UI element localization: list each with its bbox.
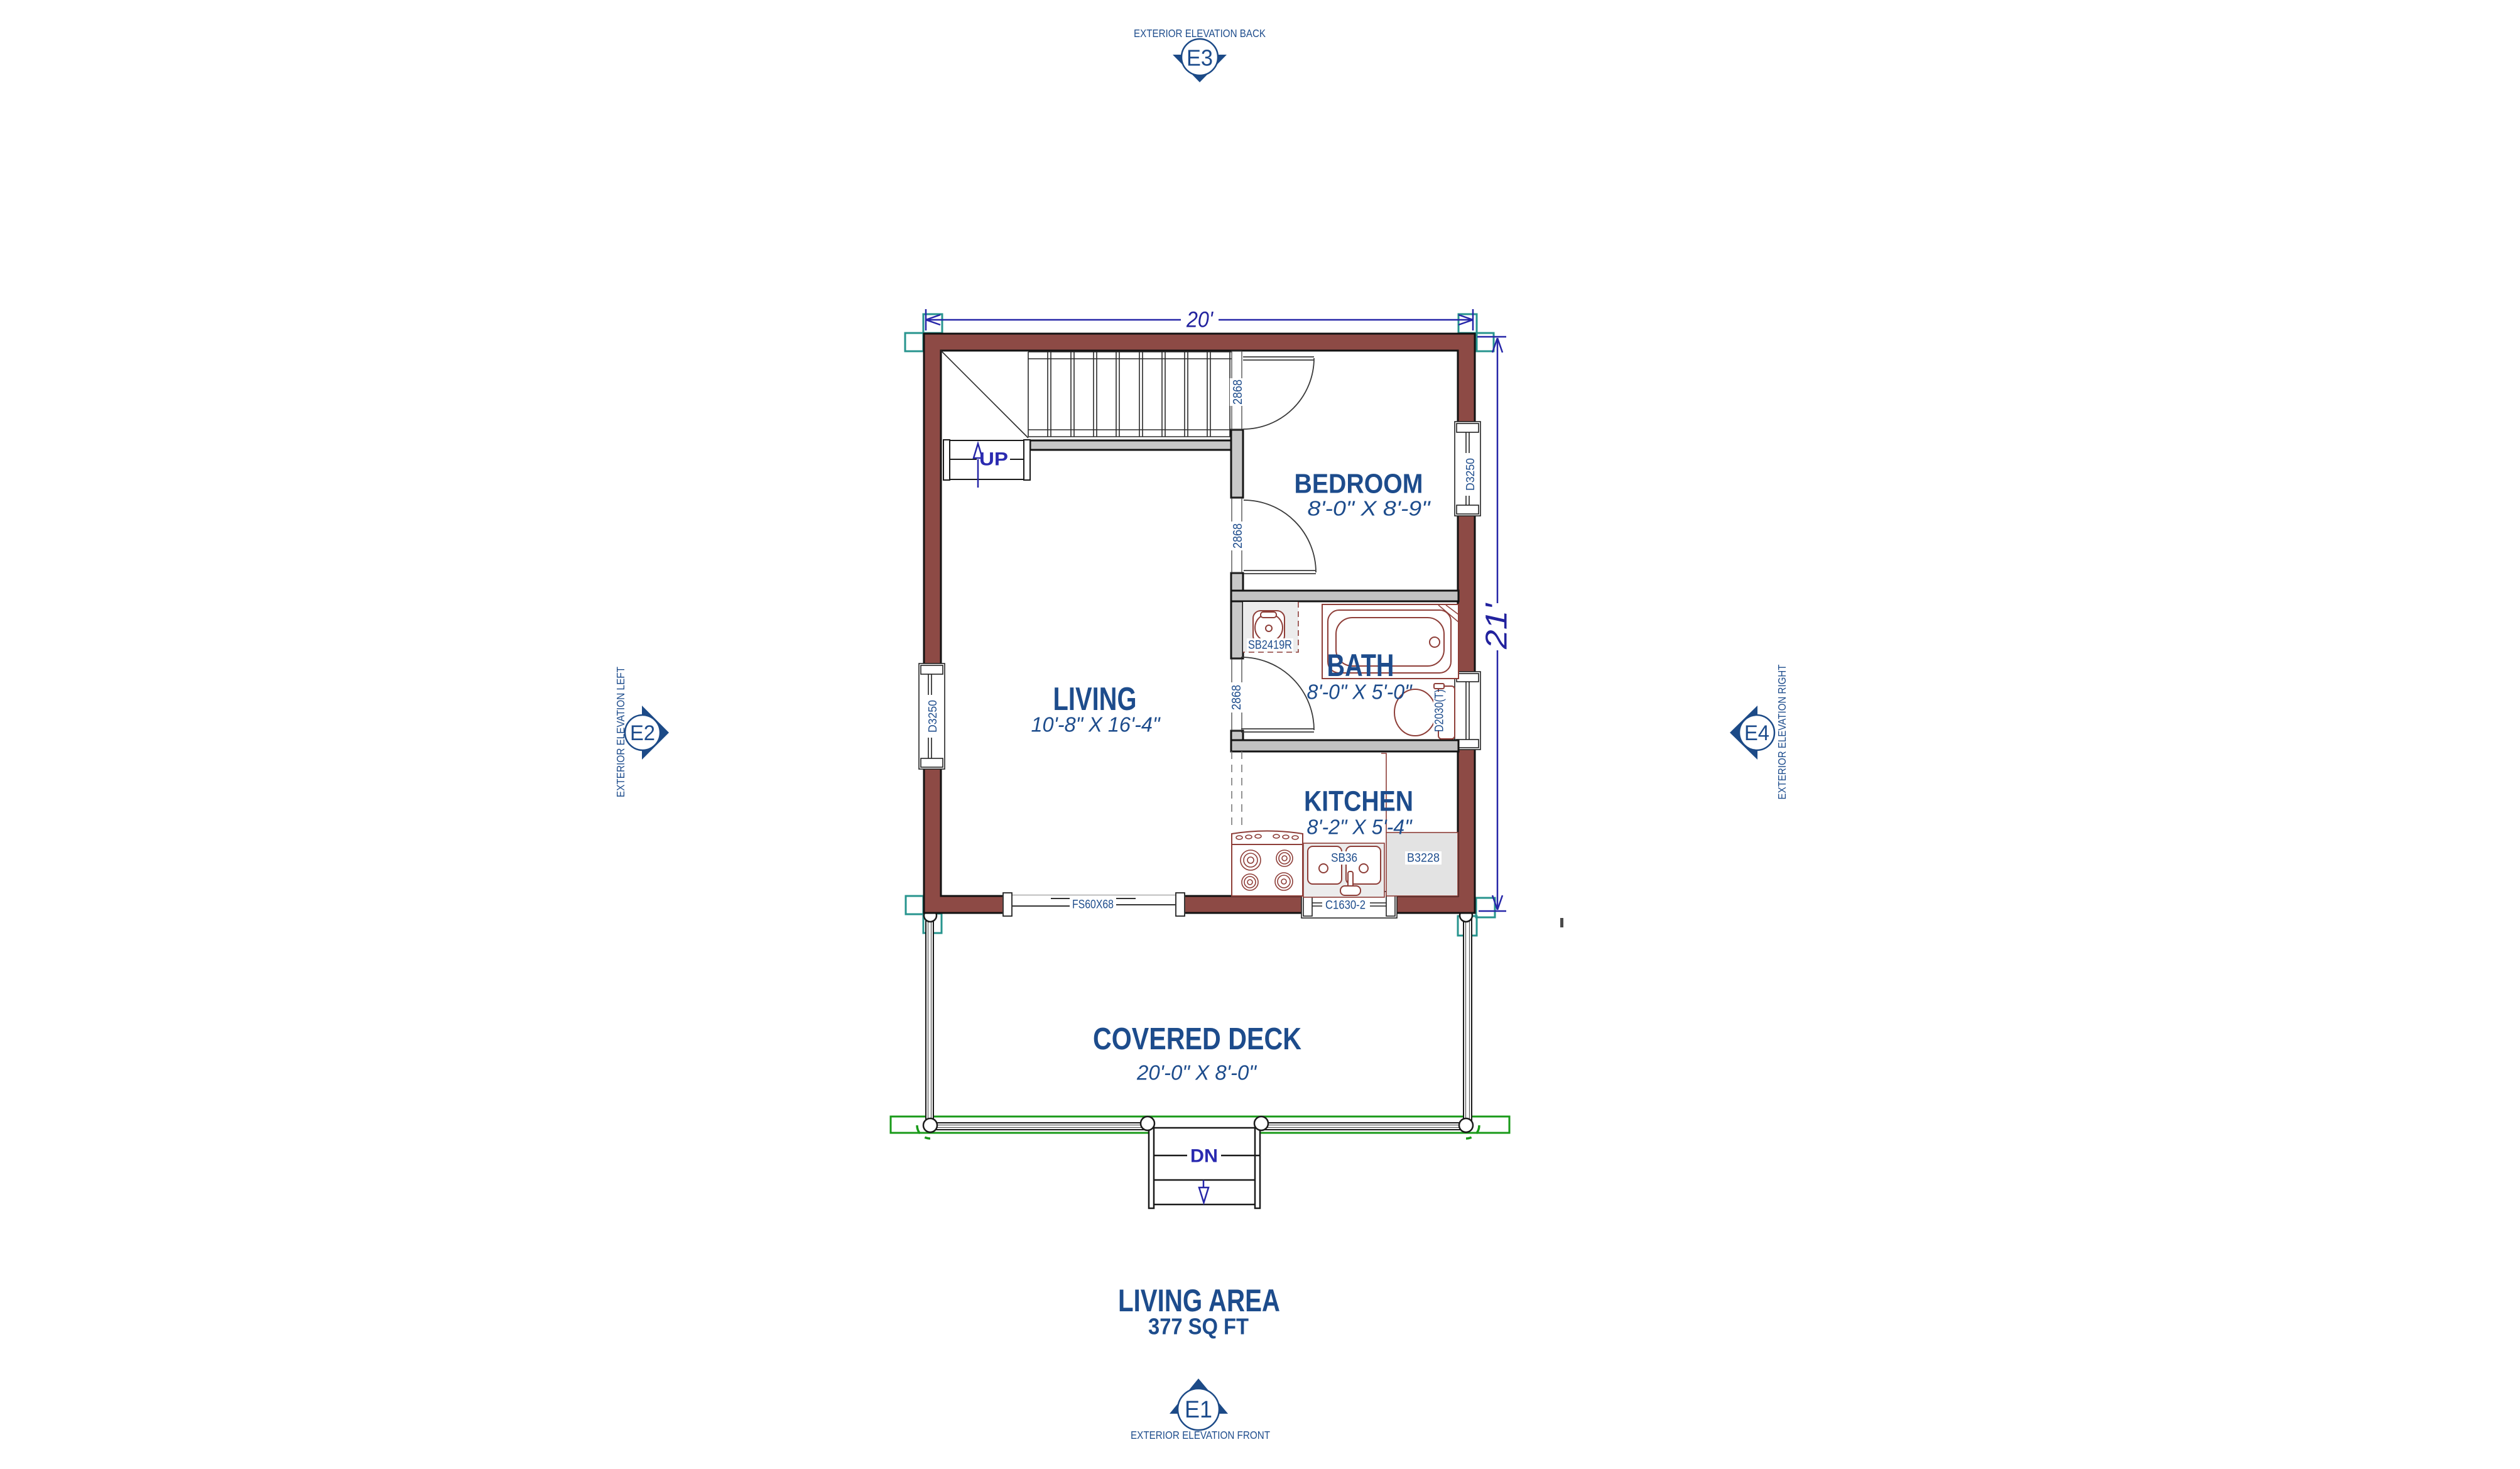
svg-text:EXTERIOR ELEVATION LEFT: EXTERIOR ELEVATION LEFT xyxy=(614,667,627,797)
svg-text:EXTERIOR ELEVATION RIGHT: EXTERIOR ELEVATION RIGHT xyxy=(1776,664,1788,799)
svg-text:LIVING: LIVING xyxy=(1053,681,1137,718)
svg-text:20': 20' xyxy=(1186,308,1214,332)
svg-text:D2030(T): D2030(T) xyxy=(1433,689,1447,732)
svg-text:SB36: SB36 xyxy=(1331,852,1357,865)
svg-text:SB2419R: SB2419R xyxy=(1248,639,1292,652)
svg-text:21': 21' xyxy=(1480,603,1514,650)
svg-text:UP: UP xyxy=(979,449,1008,470)
svg-text:BATH: BATH xyxy=(1327,648,1394,683)
svg-text:C1630-2: C1630-2 xyxy=(1325,899,1366,912)
svg-text:10'-8" X 16'-4": 10'-8" X 16'-4" xyxy=(1031,713,1161,736)
svg-text:2868: 2868 xyxy=(1231,523,1245,549)
svg-text:8'-0" X 5'-0": 8'-0" X 5'-0" xyxy=(1307,680,1413,704)
svg-text:D3250: D3250 xyxy=(926,700,939,733)
svg-text:D3250: D3250 xyxy=(1464,458,1477,491)
svg-text:BEDROOM: BEDROOM xyxy=(1295,469,1423,500)
svg-text:B3228: B3228 xyxy=(1407,852,1440,865)
svg-text:377 SQ FT: 377 SQ FT xyxy=(1148,1314,1249,1340)
svg-text:8'-0" X 8'-9": 8'-0" X 8'-9" xyxy=(1308,497,1431,520)
svg-text:E1: E1 xyxy=(1185,1397,1212,1423)
svg-text:8'-2" X 5'-4": 8'-2" X 5'-4" xyxy=(1307,816,1413,839)
svg-text:EXTERIOR ELEVATION FRONT: EXTERIOR ELEVATION FRONT xyxy=(1131,1429,1270,1441)
svg-text:KITCHEN: KITCHEN xyxy=(1304,785,1413,817)
svg-text:2868: 2868 xyxy=(1231,380,1245,405)
svg-text:2868: 2868 xyxy=(1230,685,1244,710)
svg-text:EXTERIOR ELEVATION BACK: EXTERIOR ELEVATION BACK xyxy=(1134,27,1266,40)
svg-text:E4: E4 xyxy=(1744,721,1769,745)
svg-text:FS60X68: FS60X68 xyxy=(1072,898,1114,912)
svg-text:DN: DN xyxy=(1190,1146,1218,1167)
svg-text:E3: E3 xyxy=(1187,45,1213,71)
svg-text:E2: E2 xyxy=(630,721,655,745)
svg-text:20'-0" X 8'-0": 20'-0" X 8'-0" xyxy=(1136,1061,1257,1084)
svg-text:COVERED DECK: COVERED DECK xyxy=(1093,1022,1301,1056)
